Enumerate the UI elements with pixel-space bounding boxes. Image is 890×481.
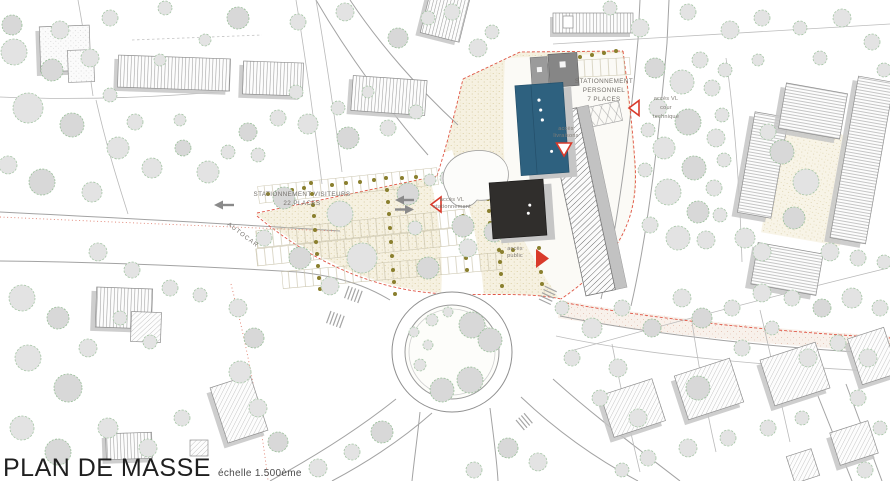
label-access-cour-technique: accès VL cour technique: [642, 95, 690, 123]
access-livraisons-line1: accès: [547, 126, 585, 133]
visitor-parking-line2: 22 PLACES: [238, 200, 366, 209]
label-access-public: accès public: [500, 246, 530, 261]
access-vl-line2: stationnement: [428, 204, 476, 211]
access-livraisons-line2: livraisons: [547, 133, 585, 140]
gray-arrow-left-icon: [214, 201, 234, 210]
access-public-line2: public: [500, 253, 530, 260]
staff-parking-stalls: [572, 57, 631, 77]
access-technique-line1: accès VL: [642, 95, 690, 104]
plan-scale: échelle 1.500ème: [218, 468, 302, 479]
access-vl-line1: accès VL: [428, 197, 476, 204]
label-visitor-parking: STATIONNEMENT VISITEURS 22 PLACES: [238, 191, 366, 209]
access-technique-line3: technique: [642, 113, 690, 122]
access-public-line1: accès: [500, 246, 530, 253]
site-plan-drawing: [0, 0, 890, 481]
staff-parking-line2: PERSONNEL: [558, 87, 650, 96]
label-staff-parking: STATIONNEMENT PERSONNEL 7 PLACES: [558, 78, 650, 104]
label-access-livraisons: accès livraisons: [547, 126, 585, 141]
title-block: PLAN DE MASSE échelle 1.500ème: [3, 454, 302, 481]
label-access-vl-stationnement: accès VL stationnement: [428, 197, 476, 212]
plan-title: PLAN DE MASSE: [3, 454, 211, 481]
site-plan: STATIONNEMENT VISITEURS 22 PLACES AUTOCA…: [0, 0, 890, 481]
access-technique-line2: cour: [642, 104, 690, 113]
building-dark: [489, 179, 555, 244]
staff-parking-line3: 7 PLACES: [558, 96, 650, 105]
visitor-parking-line1: STATIONNEMENT VISITEURS: [238, 191, 366, 200]
staff-parking-line1: STATIONNEMENT: [558, 78, 650, 87]
